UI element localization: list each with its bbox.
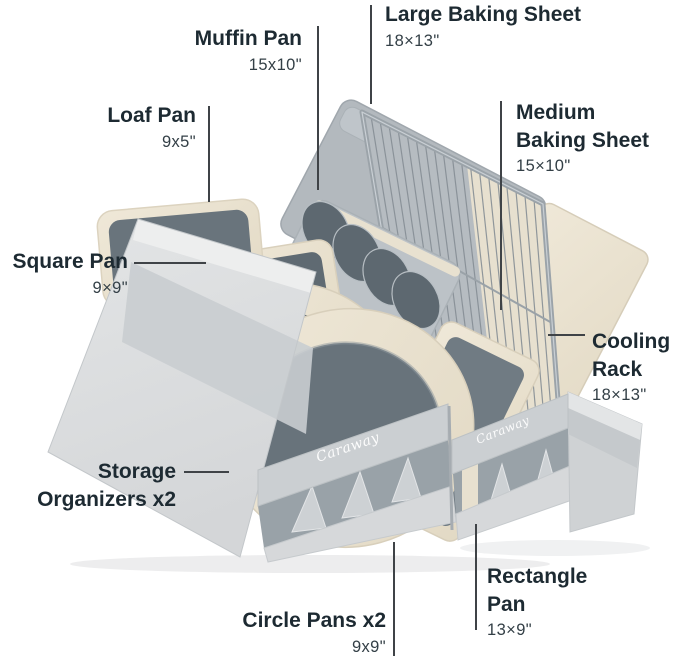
callout-title: Rectangle Pan	[487, 563, 587, 618]
callout-title: Medium Baking Sheet	[516, 99, 649, 154]
callout-title: Loaf Pan	[107, 102, 196, 130]
callout-cooling-rack: Cooling Rack 18×13"	[592, 328, 670, 406]
callout-dims: 18×13"	[592, 386, 670, 406]
callout-rectangle-pan: Rectangle Pan 13×9"	[487, 563, 587, 641]
leader-line-cooling-rack	[548, 334, 585, 336]
callout-dims: 15×10"	[516, 157, 649, 177]
callout-storage-organizers: Storage Organizers x2	[37, 458, 176, 513]
leader-line-square-pan	[134, 262, 206, 264]
callout-dims: 9x5"	[107, 133, 196, 153]
callout-muffin-pan: Muffin Pan 15x10"	[195, 25, 302, 76]
product-annotation-scene: Caraway Caraway	[0, 0, 679, 658]
callout-title: Square Pan	[12, 248, 128, 276]
callout-dims: 13×9"	[487, 621, 587, 641]
leader-line-muffin-pan	[317, 26, 319, 190]
leader-line-loaf-pan	[208, 106, 210, 202]
leader-line-rectangle-pan	[475, 524, 477, 630]
callout-title: Circle Pans x2	[242, 607, 386, 635]
leader-line-large-baking-sheet	[370, 5, 372, 104]
callout-loaf-pan: Loaf Pan 9x5"	[107, 102, 196, 153]
callout-circle-pans: Circle Pans x2 9x9"	[242, 607, 386, 658]
callout-medium-baking-sheet: Medium Baking Sheet 15×10"	[516, 99, 649, 177]
callout-dims: 9x9"	[242, 638, 386, 658]
callout-title: Large Baking Sheet	[385, 1, 581, 29]
callout-dims: 15x10"	[195, 56, 302, 76]
callout-title: Cooling Rack	[592, 328, 670, 383]
leader-line-storage-organizers	[184, 471, 229, 473]
callout-title: Muffin Pan	[195, 25, 302, 53]
callout-title: Storage Organizers x2	[37, 458, 176, 513]
leader-line-medium-baking-sheet	[500, 101, 502, 310]
leader-line-circle-pans	[393, 542, 395, 656]
callout-dims: 9×9"	[12, 279, 128, 299]
callout-large-baking-sheet: Large Baking Sheet 18×13"	[385, 1, 581, 52]
callout-square-pan: Square Pan 9×9"	[12, 248, 128, 299]
callout-dims: 18×13"	[385, 32, 581, 52]
